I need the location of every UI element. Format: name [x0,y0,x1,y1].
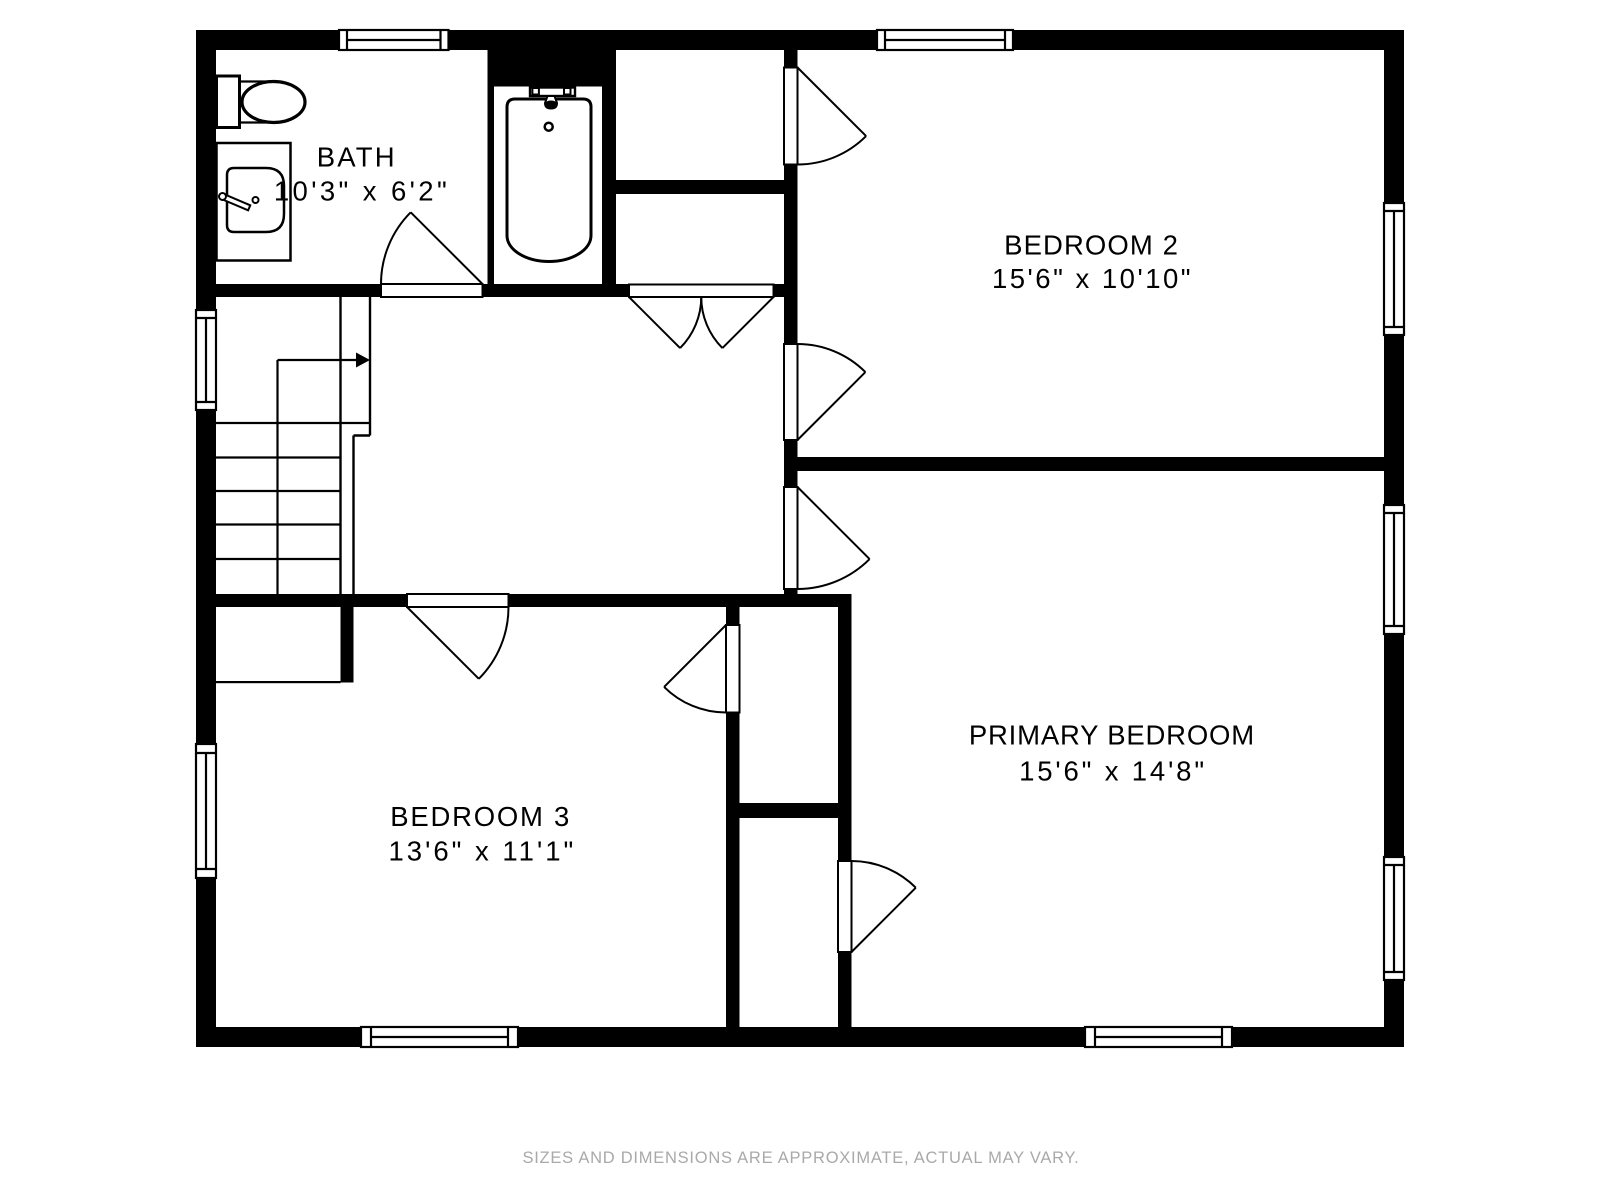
svg-text:15'6" x 10'10": 15'6" x 10'10" [992,263,1193,294]
svg-text:PRIMARY BEDROOM: PRIMARY BEDROOM [969,719,1255,750]
svg-text:BATH: BATH [317,141,397,172]
svg-text:BEDROOM 3: BEDROOM 3 [390,801,571,832]
svg-text:15'6" x 14'8": 15'6" x 14'8" [1019,756,1207,787]
svg-text:SIZES AND DIMENSIONS ARE APPRO: SIZES AND DIMENSIONS ARE APPROXIMATE, AC… [522,1149,1079,1167]
svg-text:BEDROOM 2: BEDROOM 2 [1004,230,1179,261]
svg-text:10'3" x 6'2": 10'3" x 6'2" [274,175,450,206]
svg-text:13'6" x 11'1": 13'6" x 11'1" [389,836,577,867]
